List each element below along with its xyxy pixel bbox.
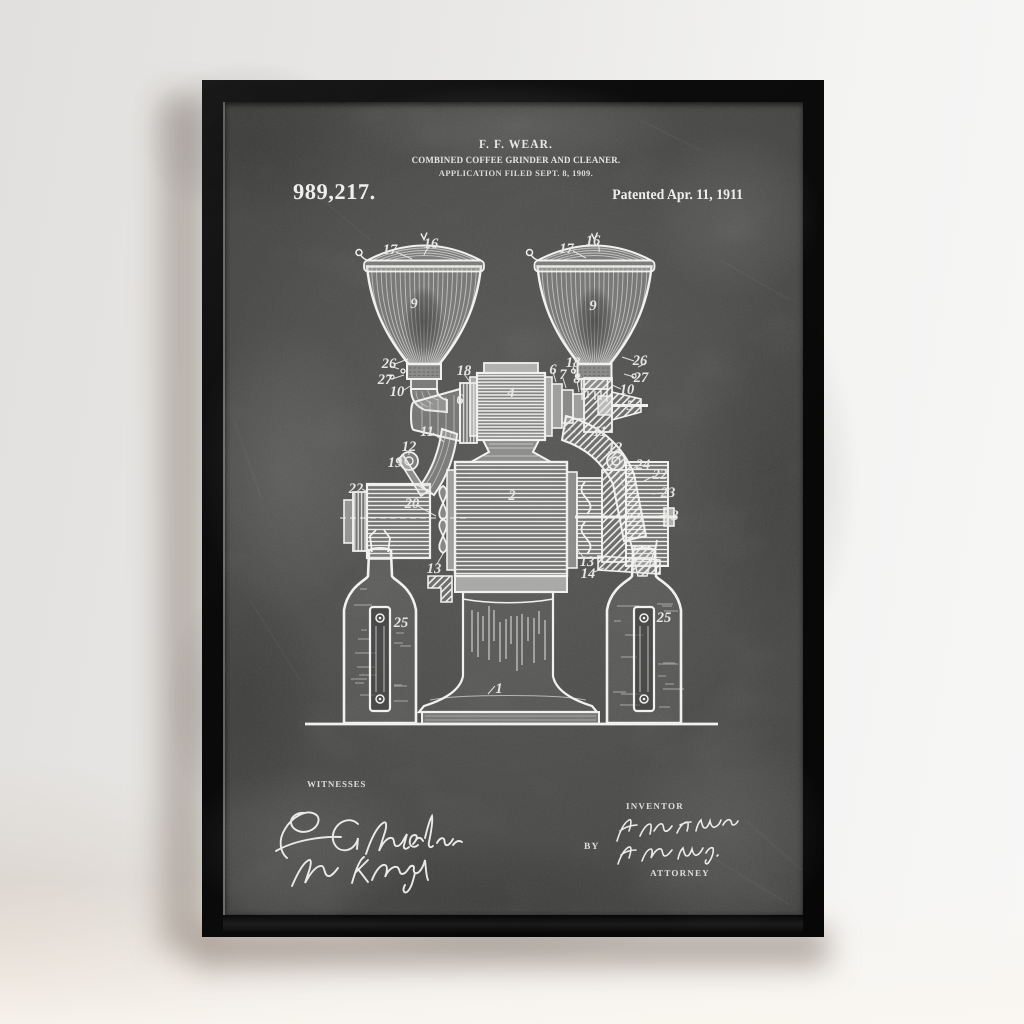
svg-text:2: 2 xyxy=(507,488,515,504)
svg-text:11: 11 xyxy=(593,424,607,440)
svg-text:10: 10 xyxy=(390,384,405,400)
svg-text:16: 16 xyxy=(424,236,439,252)
svg-text:ATTORNEY: ATTORNEY xyxy=(650,868,710,878)
svg-text:19: 19 xyxy=(388,455,403,471)
svg-text:9: 9 xyxy=(589,298,596,314)
svg-text:24: 24 xyxy=(635,457,651,473)
svg-text:10: 10 xyxy=(620,382,635,398)
svg-text:989,217.: 989,217. xyxy=(293,179,376,204)
svg-text:20: 20 xyxy=(404,496,420,512)
svg-text:6: 6 xyxy=(549,362,557,378)
svg-text:5: 5 xyxy=(626,398,633,414)
svg-text:14: 14 xyxy=(581,566,596,582)
svg-text:26: 26 xyxy=(381,356,397,372)
svg-text:11: 11 xyxy=(420,424,434,440)
svg-text:25: 25 xyxy=(393,615,409,631)
svg-text:COMBINED COFFEE GRINDER AND CL: COMBINED COFFEE GRINDER AND CLEANER. xyxy=(412,155,621,166)
svg-text:9: 9 xyxy=(410,296,417,312)
svg-text:Patented Apr. 11, 1911: Patented Apr. 11, 1911 xyxy=(612,187,743,203)
svg-text:4: 4 xyxy=(506,385,514,401)
svg-text:12: 12 xyxy=(608,440,623,456)
svg-text:WITNESSES: WITNESSES xyxy=(307,779,366,789)
svg-text:3: 3 xyxy=(670,508,678,524)
svg-text:17: 17 xyxy=(383,242,398,258)
svg-text:17: 17 xyxy=(559,241,574,257)
svg-text:INVENTOR: INVENTOR xyxy=(626,801,684,811)
svg-text:25: 25 xyxy=(656,610,672,626)
svg-text:13: 13 xyxy=(427,561,442,577)
svg-text:1: 1 xyxy=(495,681,502,697)
svg-text:F. F. WEAR.: F. F. WEAR. xyxy=(479,137,553,151)
svg-text:APPLICATION FILED SEPT. 8, 190: APPLICATION FILED SEPT. 8, 1909. xyxy=(439,168,593,178)
svg-text:23: 23 xyxy=(660,485,676,501)
svg-text:BY: BY xyxy=(584,842,600,852)
svg-text:22: 22 xyxy=(348,481,364,497)
svg-text:6: 6 xyxy=(456,392,464,408)
svg-text:22: 22 xyxy=(652,467,668,483)
svg-text:18: 18 xyxy=(457,363,472,379)
